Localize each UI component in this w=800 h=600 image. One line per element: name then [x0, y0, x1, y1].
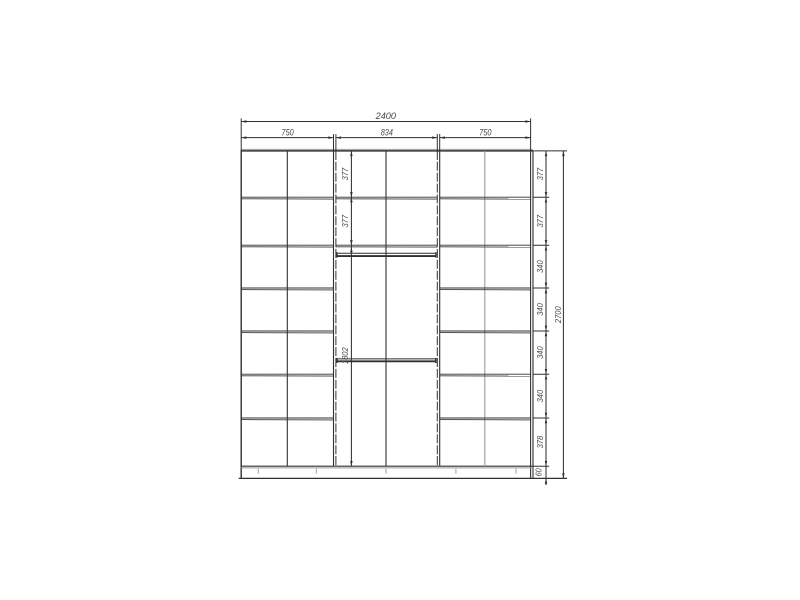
svg-text:340: 340: [535, 390, 545, 403]
svg-text:340: 340: [535, 346, 545, 359]
svg-text:378: 378: [535, 436, 545, 449]
svg-text:377: 377: [535, 167, 545, 180]
svg-text:2700: 2700: [553, 306, 563, 324]
svg-text:750: 750: [479, 126, 492, 137]
svg-text:750: 750: [282, 126, 295, 137]
svg-text:1802: 1802: [340, 347, 350, 364]
svg-text:377: 377: [340, 215, 350, 228]
svg-text:340: 340: [535, 303, 545, 316]
svg-text:340: 340: [535, 260, 545, 273]
svg-text:60: 60: [533, 468, 543, 476]
svg-text:834: 834: [381, 126, 393, 137]
svg-text:2400: 2400: [375, 110, 397, 121]
svg-text:377: 377: [535, 215, 545, 228]
svg-text:377: 377: [340, 167, 350, 180]
